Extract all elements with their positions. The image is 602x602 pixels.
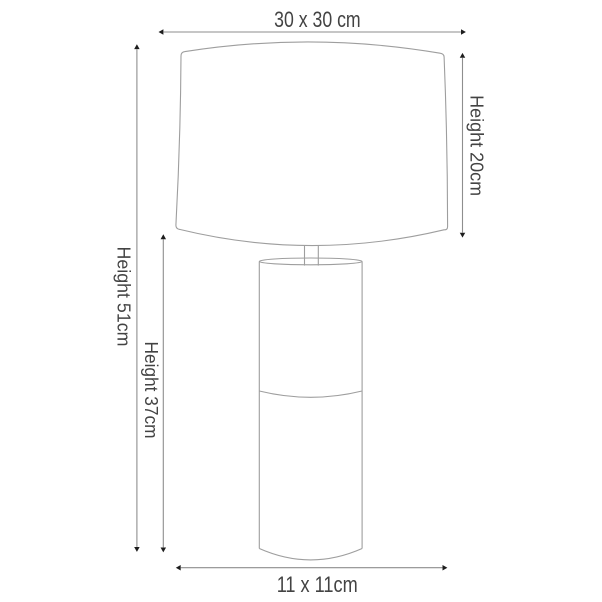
svg-text:Height 37cm: Height 37cm	[141, 342, 162, 439]
svg-text:Height 51cm: Height 51cm	[114, 247, 135, 347]
svg-text:Height 20cm: Height 20cm	[466, 95, 487, 196]
svg-text:30 x 30 cm: 30 x 30 cm	[274, 7, 361, 32]
svg-text:11 x 11cm: 11 x 11cm	[277, 572, 358, 597]
